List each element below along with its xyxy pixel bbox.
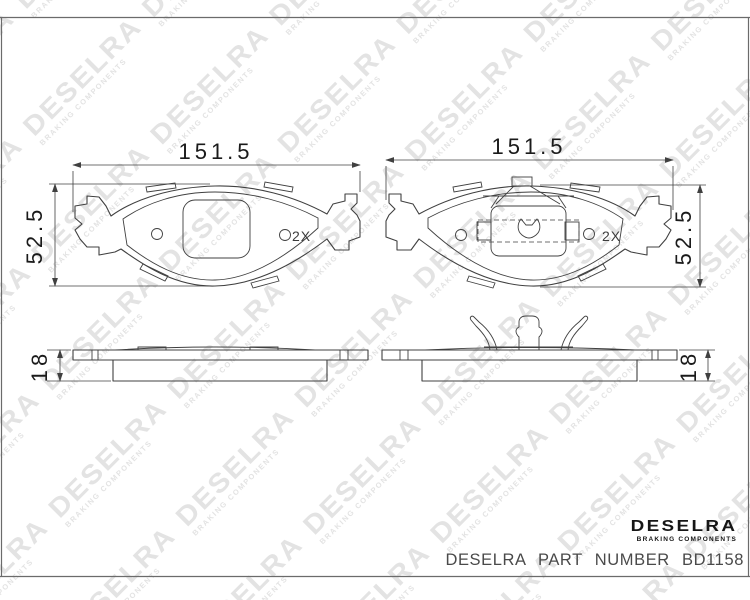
clip-body: [491, 206, 566, 256]
clip-prong-right: [561, 316, 588, 350]
dimension-width-right: 151.5: [386, 134, 673, 210]
backing-plate-edge: [382, 350, 677, 360]
dim-width-left-text: 151.5: [178, 139, 253, 164]
side-view-right-pad: 18: [382, 316, 715, 382]
brand-logo-tagline: BRAKING COMPONENTS: [637, 536, 737, 544]
footer-logo: DESELRA BRAKING COMPONENTS: [637, 519, 737, 544]
clip-leg: [477, 222, 491, 240]
drawing-sheet: DESELRABRAKING COMPONENTSDESELRABRAKING …: [0, 0, 750, 600]
side-view-left-pad: 18: [27, 347, 368, 382]
dim-height-left-text: 52.5: [22, 206, 47, 265]
part-number-label: DESELRA PART NUMBER BD1158: [445, 551, 744, 570]
dimension-height-left: 52.5: [22, 184, 210, 286]
pad-shim-window: [183, 200, 250, 258]
qty-label-right: 2X: [602, 228, 621, 244]
front-view-right-pad: 2X 151.5 52.5: [386, 134, 706, 288]
friction-material-edge: [422, 360, 637, 381]
sheet-frame: [0, 17, 750, 577]
dim-thickness-right-text: 18: [676, 350, 701, 382]
qty-label-left: 2X: [292, 228, 311, 244]
front-view-left-pad: 2X 151.5 52.5: [22, 139, 360, 288]
dim-width-right-text: 151.5: [491, 134, 566, 159]
clip-leg: [565, 222, 579, 240]
retaining-spring-clip: [470, 316, 587, 350]
dimension-width-left: 151.5: [73, 139, 360, 212]
clip-prong-left: [470, 316, 497, 350]
clip-center-post: [516, 316, 542, 350]
clip-keyhole: [518, 219, 540, 238]
brake-pad-drawing: 2X 151.5 52.5: [0, 0, 750, 600]
backing-plate-edge: [73, 350, 368, 360]
brand-logo-text: DESELRA: [619, 519, 737, 536]
dimension-thickness-right: 18: [639, 350, 715, 382]
dim-height-right-text: 52.5: [671, 207, 696, 266]
clip-hidden-outline: [478, 220, 579, 242]
clip-top-tab: [512, 177, 532, 186]
friction-material-edge: [113, 360, 327, 381]
dim-thickness-left-text: 18: [27, 350, 52, 382]
